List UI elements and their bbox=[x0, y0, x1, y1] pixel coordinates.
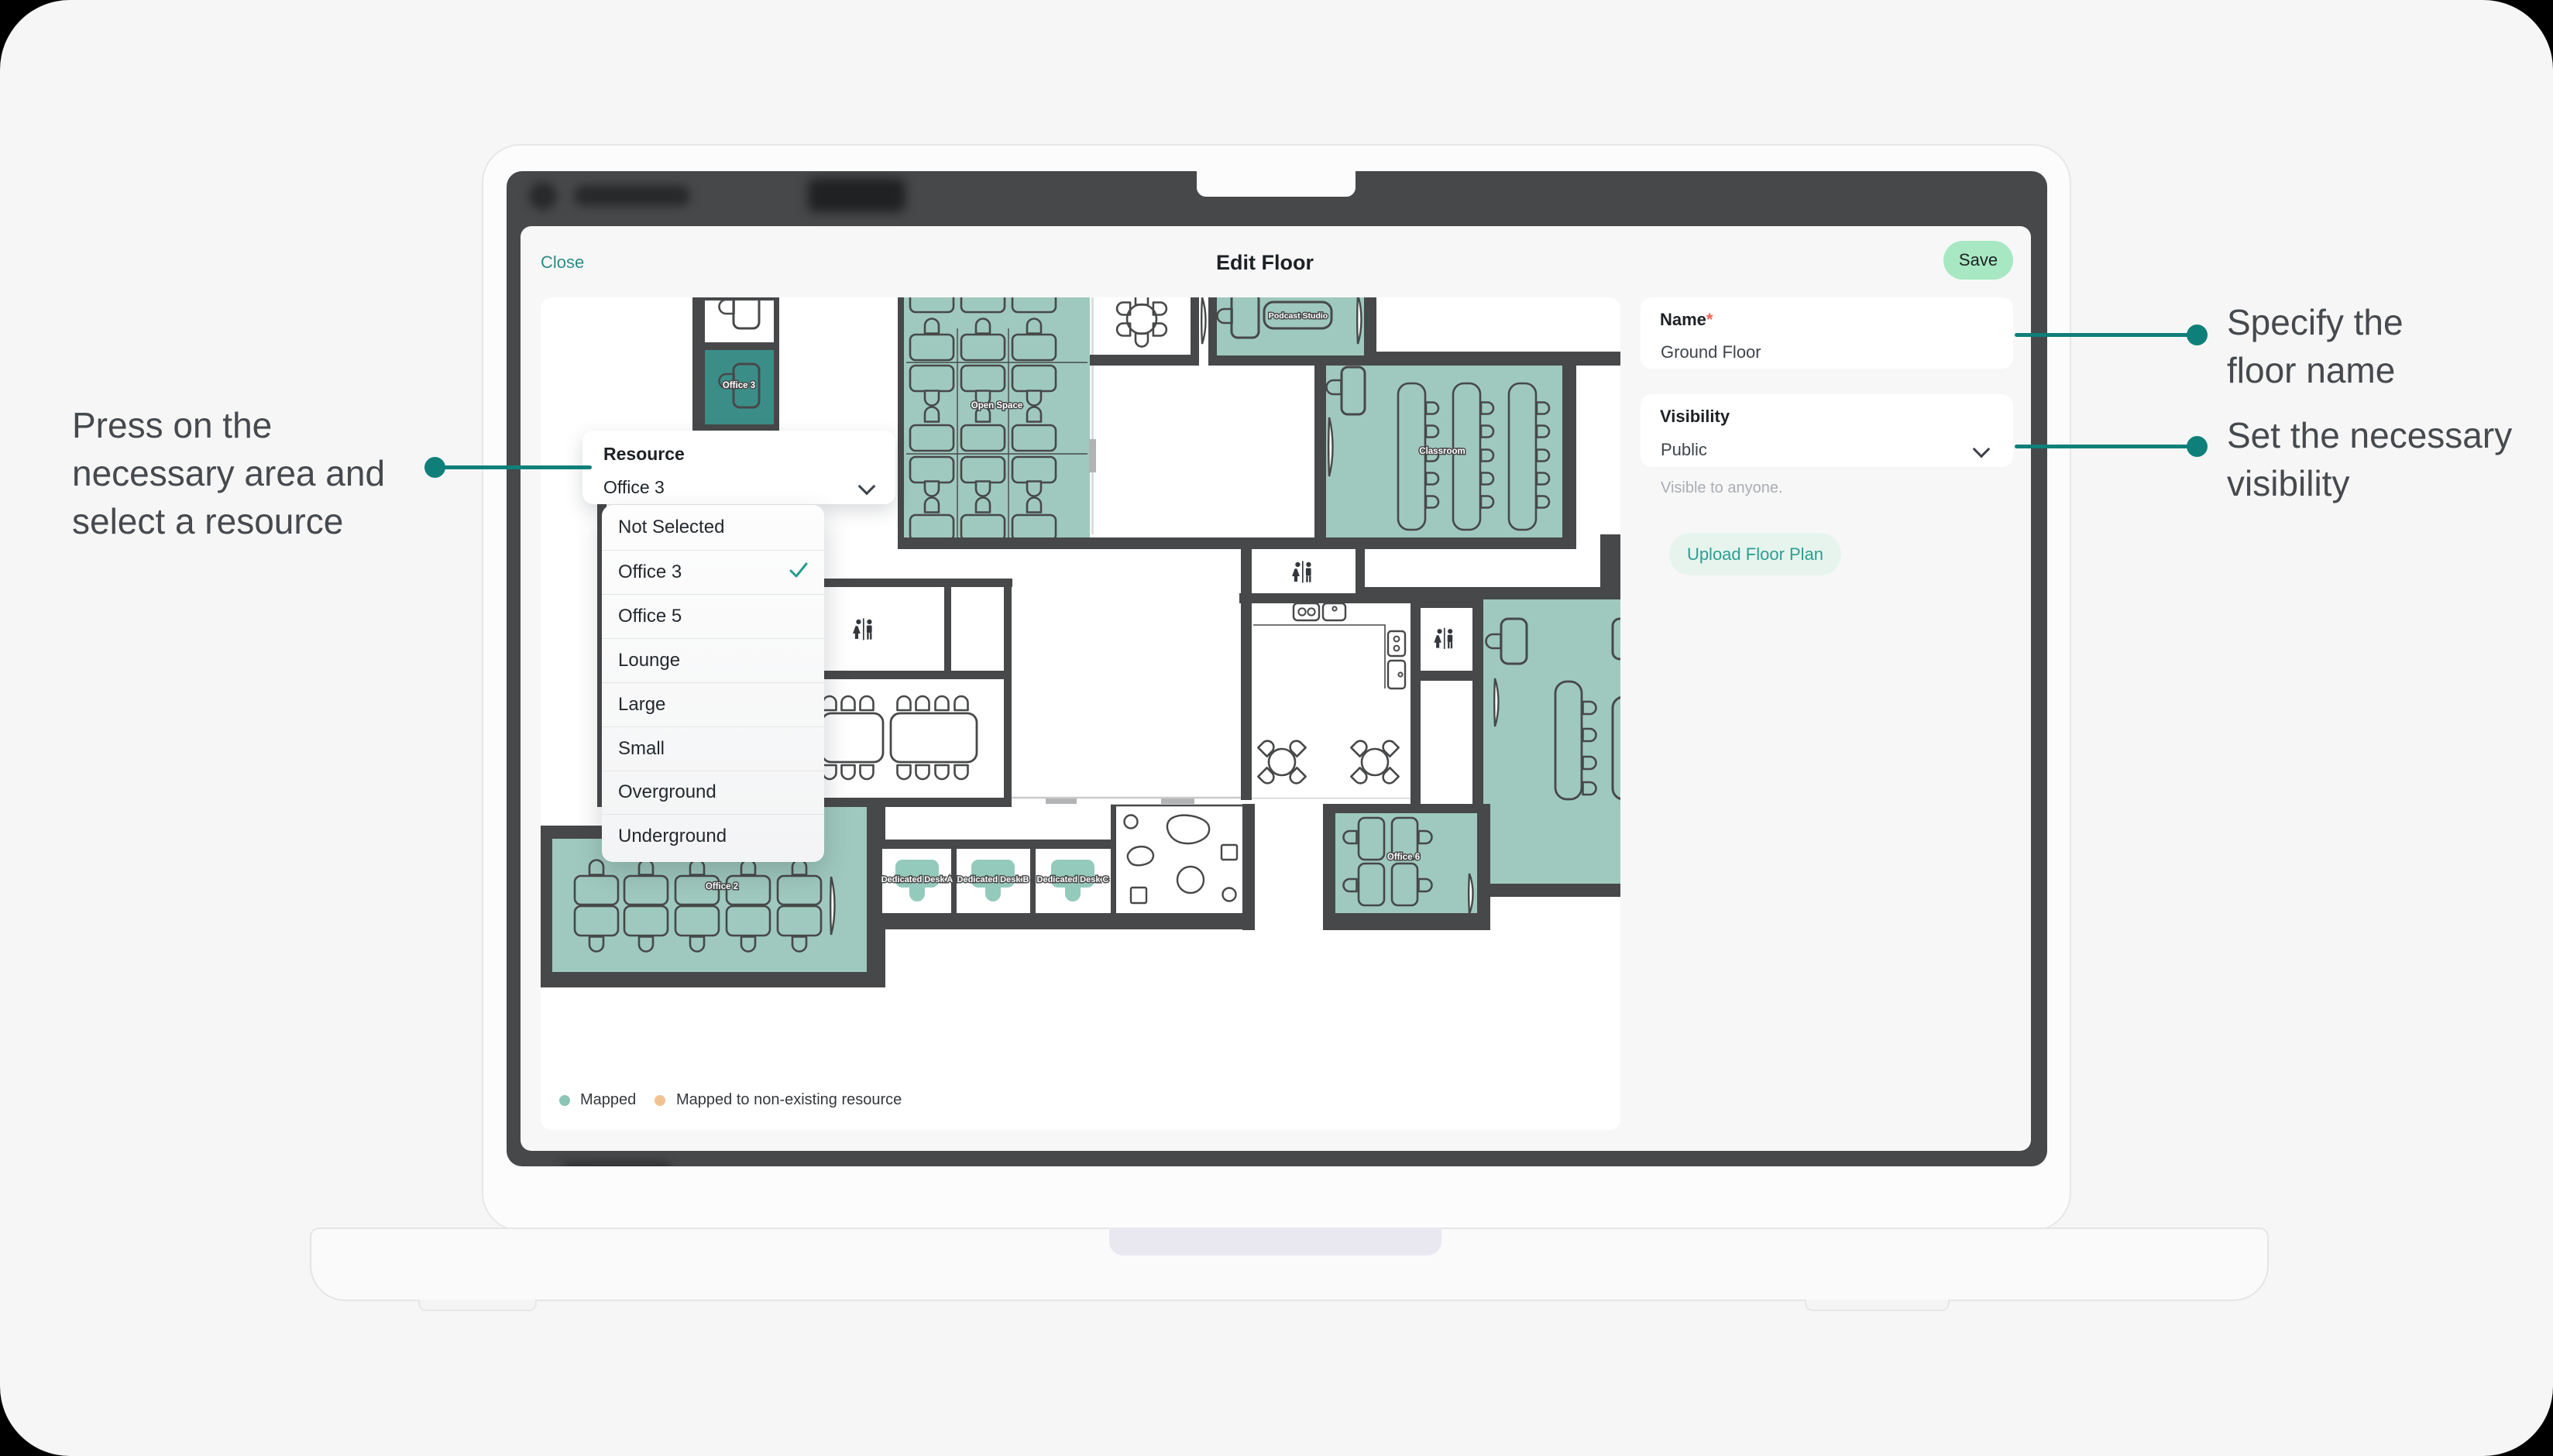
svg-text:Dedicated Desk A: Dedicated Desk A bbox=[881, 875, 954, 884]
svg-text:Office 3: Office 3 bbox=[723, 381, 755, 390]
svg-text:Open Space: Open Space bbox=[971, 401, 1022, 410]
svg-text:Dedicated Desk C: Dedicated Desk C bbox=[1037, 875, 1109, 884]
svg-text:Office 2: Office 2 bbox=[706, 882, 738, 891]
svg-text:Office 6: Office 6 bbox=[1387, 853, 1420, 862]
svg-text:Dedicated Desk B: Dedicated Desk B bbox=[957, 875, 1029, 884]
svg-text:Classroom: Classroom bbox=[1419, 447, 1465, 456]
svg-text:Podcast Studio: Podcast Studio bbox=[1269, 311, 1328, 321]
